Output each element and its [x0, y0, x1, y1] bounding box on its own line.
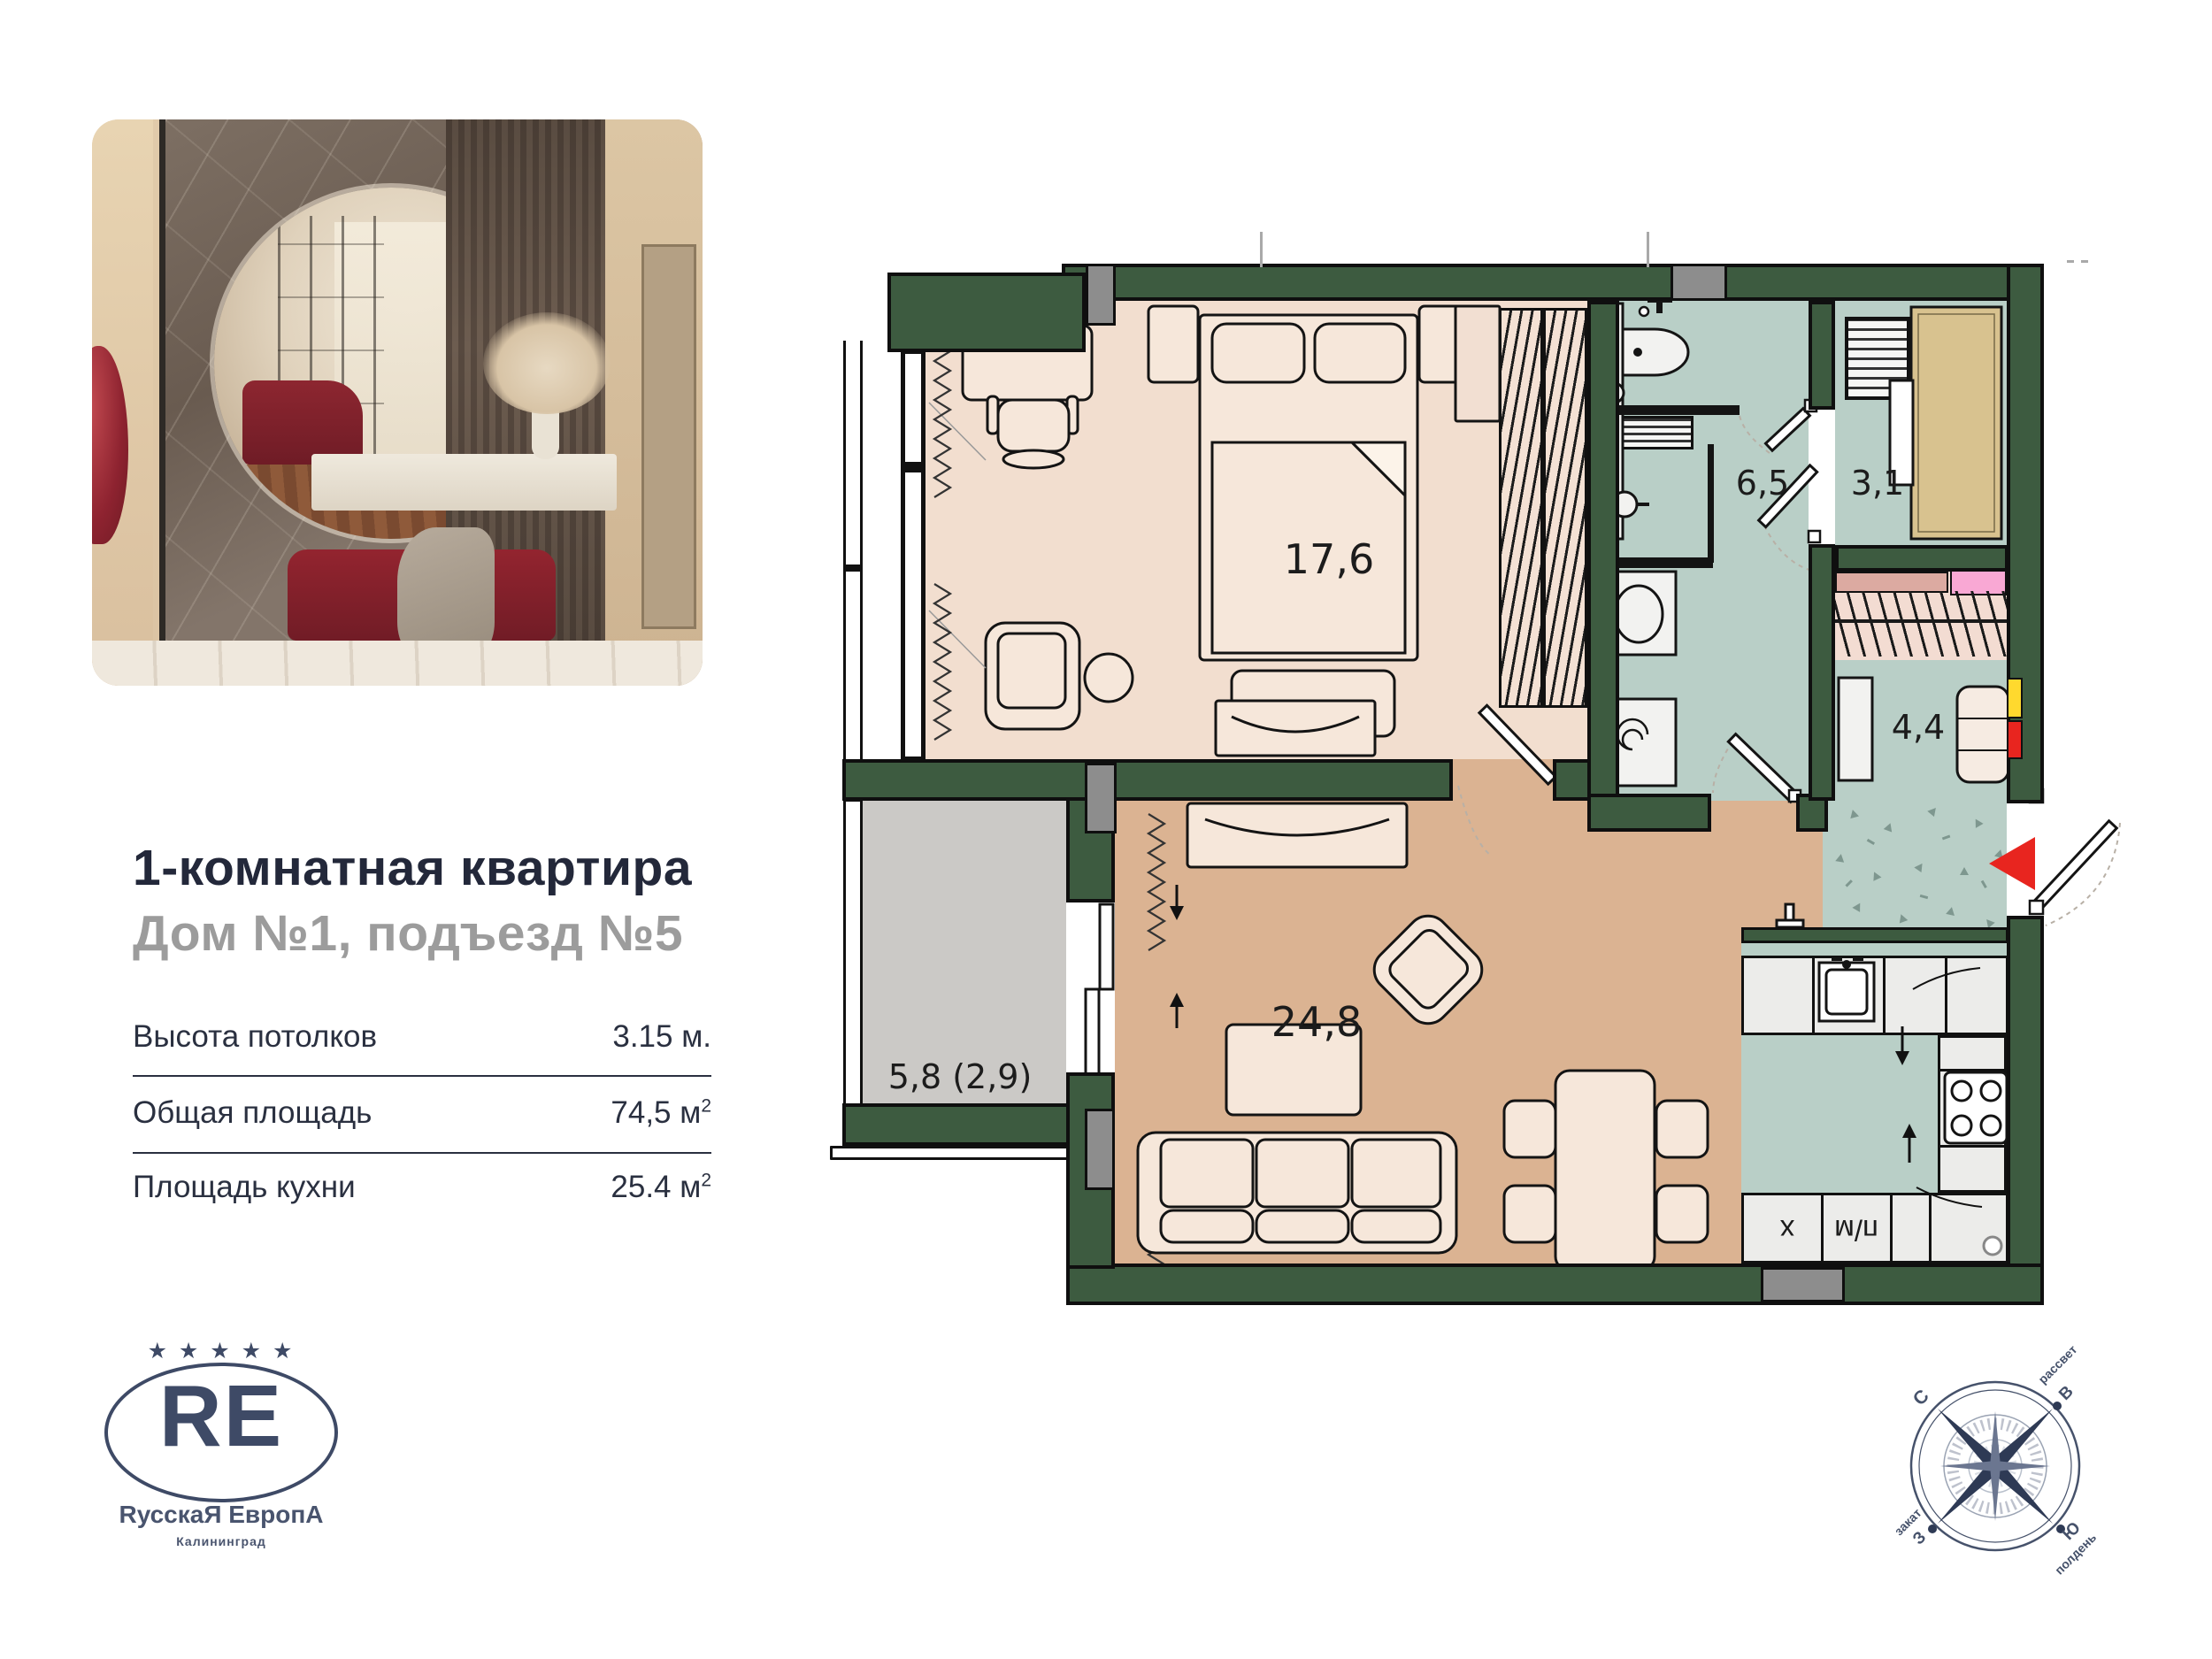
wall-bottom	[1066, 1263, 2044, 1305]
wall-bath-bottom	[1587, 794, 1711, 832]
radiator-coil	[1148, 814, 1164, 950]
shower-partition	[1708, 444, 1714, 563]
electric-panel-marker	[2007, 678, 2023, 718]
sofa	[1138, 1133, 1456, 1253]
wall-block	[1671, 264, 1727, 301]
nightstand	[1148, 306, 1198, 382]
toilet	[1623, 329, 1688, 375]
lounge-chair	[1365, 907, 1490, 1032]
kitchen-label-fridge: х	[1780, 1213, 1795, 1247]
slide-arrow	[1170, 885, 1184, 1028]
bedroom-tv-dresser	[1216, 701, 1375, 756]
wall-block	[1085, 763, 1117, 833]
window-swing-mark	[929, 403, 986, 668]
stove	[1945, 1072, 2007, 1143]
pouf	[1085, 654, 1133, 702]
storage-closet	[1911, 307, 2001, 539]
flyer-page: { "listing": { "title": "1-комнатная ква…	[0, 0, 2212, 1659]
bed	[1200, 315, 1417, 660]
sliding-door-panel	[1086, 989, 1099, 1074]
hall-bench	[1957, 687, 2008, 782]
kitchen-wall-faucet	[1777, 904, 1803, 927]
wall-balcony-bottom	[842, 1103, 1081, 1146]
room-label-living: 24,8	[1271, 998, 1362, 1046]
wall-block	[1761, 1267, 1845, 1302]
wall-bath-right-lower	[1809, 544, 1835, 801]
bath-halfwall	[1598, 405, 1740, 415]
wall-top	[1062, 264, 2044, 301]
room-label-bathroom: 6,5	[1736, 464, 1789, 503]
wall-right-lower	[2007, 916, 2044, 1305]
door-bedroom	[1458, 705, 1555, 855]
door-bathroom	[1713, 734, 1801, 803]
wall-bedroom-bottom	[842, 759, 1453, 801]
door-entrance	[2030, 789, 2120, 926]
room-label-bedroom: 17,6	[1284, 535, 1374, 583]
dimension-tick	[1647, 232, 1649, 267]
wall-bath-left	[1587, 301, 1619, 801]
dining-table	[1555, 1071, 1655, 1271]
wall-bath-right-upper	[1809, 301, 1835, 410]
room-label-hall: 4,4	[1892, 708, 1945, 747]
armchair	[986, 623, 1079, 729]
radiator-coil	[934, 342, 950, 497]
sliding-door-panel	[1100, 904, 1113, 989]
wall-block	[1085, 1109, 1115, 1190]
room-label-storage: 3,1	[1851, 464, 1904, 503]
hall-cabinet	[1839, 678, 1872, 780]
wall-block	[1086, 264, 1116, 326]
radiator-coil	[934, 584, 950, 740]
wall-storage-bottom	[1835, 545, 2008, 572]
kitchen-sink	[1819, 959, 1874, 1021]
wall-top-step	[887, 273, 1086, 352]
dimension-tick	[1260, 232, 1263, 267]
dimension-tick	[2081, 260, 2088, 263]
bedroom-cabinet	[1455, 306, 1500, 421]
kitchen-drain	[1984, 1237, 2001, 1255]
dimension-tick	[2067, 260, 2074, 263]
electric-panel-marker-red	[2007, 720, 2023, 759]
entrance-marker	[1989, 837, 2035, 890]
tv-console	[1187, 803, 1407, 867]
door-storage	[1740, 400, 1816, 453]
kitchen-label-dishwasher: п/м	[1834, 1213, 1878, 1247]
room-label-balcony: 5,8 (2,9)	[888, 1057, 1033, 1096]
wall-kitchen-top	[1741, 927, 2008, 943]
